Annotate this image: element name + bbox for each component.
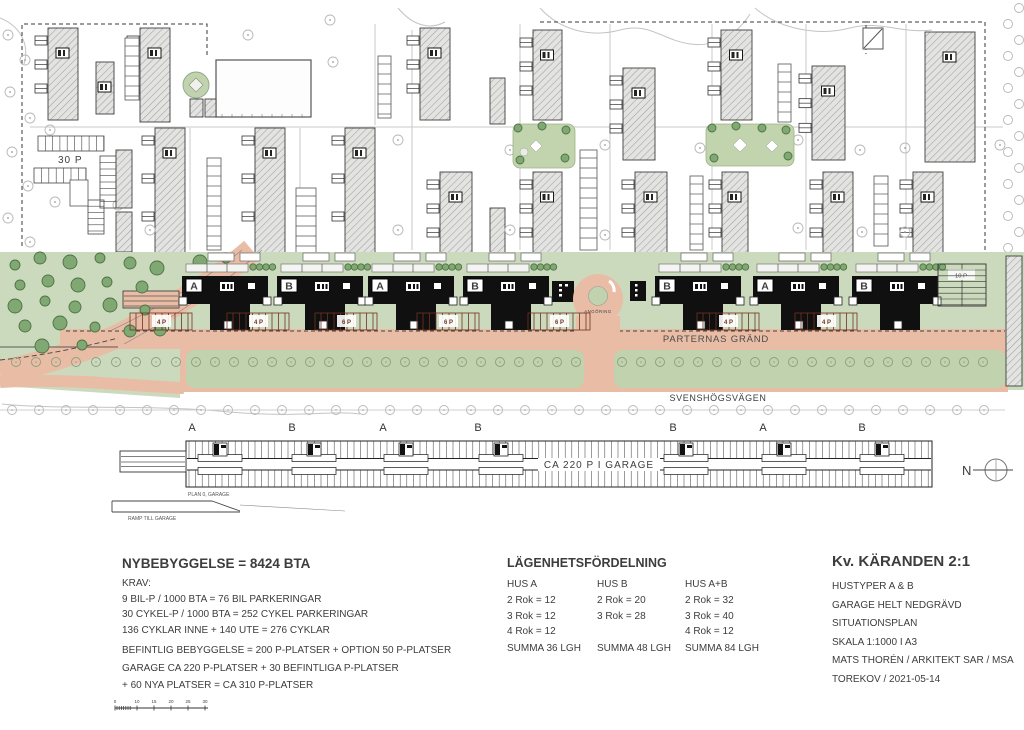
north-label: N <box>962 463 971 478</box>
tree-icon <box>77 340 87 350</box>
service-building <box>874 176 888 246</box>
existing-building <box>708 30 752 120</box>
garage-title: CA 220 P I GARAGE <box>544 460 654 471</box>
stats-line: GARAGE CA 220 P-PLATSER + 30 BEFINTLIGA … <box>122 663 451 674</box>
garage-section-letter-B: B <box>669 422 676 434</box>
tree-icon <box>71 278 85 292</box>
tree-icon <box>840 264 846 270</box>
tree-icon <box>537 264 543 270</box>
tree-icon <box>63 255 77 269</box>
existing-building <box>332 128 375 262</box>
tree-icon <box>1004 84 1013 93</box>
scale-tick-label: 20 <box>168 699 174 704</box>
service-building <box>778 64 791 122</box>
existing-building <box>709 172 748 262</box>
tree-icon <box>455 264 461 270</box>
tree-icon <box>1015 100 1024 109</box>
existing-building <box>520 30 562 120</box>
tree-icon <box>723 264 729 270</box>
parking-group-label: 6 P <box>342 320 351 326</box>
situationsplan-sheet: 30 P PARTERNAS GRÄND <box>0 0 1024 730</box>
scale-tick-label: 10 <box>134 699 140 704</box>
table-row: 3 Rok = 28 <box>597 611 685 622</box>
tree-icon <box>263 264 269 270</box>
tree-icon <box>1015 164 1024 173</box>
street-label-svenshogsvagen: SVENSHÖGSVÄGEN <box>670 393 767 403</box>
tree-icon <box>514 124 522 132</box>
table-row: 2 Rok = 20 <box>597 595 685 606</box>
building-label-A: A <box>190 281 198 293</box>
tree-icon <box>1015 68 1024 77</box>
ramp-section-drawing <box>112 501 345 512</box>
existing-building <box>925 32 975 162</box>
scale-bar: 01015202530 <box>114 699 208 711</box>
garage-section-letter-A: A <box>188 422 196 434</box>
tree-icon <box>15 280 25 290</box>
tree-icon <box>34 252 46 264</box>
tree-icon <box>1015 36 1024 45</box>
tree-icon <box>516 156 524 164</box>
tree-icon <box>1004 180 1013 189</box>
tree-icon <box>1004 20 1013 29</box>
column-total: SUMMA 36 LGH <box>507 643 597 654</box>
service-building <box>207 158 221 250</box>
existing-buildings <box>35 28 975 262</box>
table-row: 2 Rok = 12 <box>507 595 597 606</box>
scale-tick-label: 30 <box>202 699 208 704</box>
stats-title: NYBEBYGGELSE = 8424 BTA <box>122 556 451 571</box>
tree-icon <box>90 322 100 332</box>
title-line: TOREKOV / 2021-05-14 <box>832 674 1014 685</box>
tree-icon <box>1004 244 1013 253</box>
existing-building <box>490 78 505 124</box>
column-total: SUMMA 84 LGH <box>685 643 805 654</box>
service-building <box>296 188 316 258</box>
table-row-empty <box>597 626 685 637</box>
tree-icon <box>1015 196 1024 205</box>
tree-icon <box>939 264 945 270</box>
tree-icon <box>250 264 256 270</box>
existing-building <box>407 28 450 120</box>
scale-tick-label: 25 <box>185 699 191 704</box>
tree-icon <box>562 126 570 134</box>
tree-icon <box>124 257 136 269</box>
existing-building <box>810 172 853 262</box>
tree-icon <box>729 264 735 270</box>
parking-group-label: 6 P <box>444 320 453 326</box>
existing-building <box>427 172 472 262</box>
stats-line: + 60 NYA PLATSER = CA 310 P-PLATSER <box>122 680 451 691</box>
tree-icon <box>1004 212 1013 221</box>
garage-section-letter-B: B <box>288 422 295 434</box>
statistics-block: NYBEBYGGELSE = 8424 BTA KRAV: 9 BIL-P / … <box>122 556 451 698</box>
building-label-A: A <box>761 281 769 293</box>
building-label-B: B <box>860 281 868 293</box>
tree-icon <box>708 124 716 132</box>
garage-ramp-structure <box>123 291 179 308</box>
tree-icon <box>742 264 748 270</box>
garage-plan: ABABBAB CA 220 P I GARAGE PLAN 0, GARAGE… <box>112 422 932 522</box>
tree-icon <box>449 264 455 270</box>
north-compass: N <box>962 459 1013 481</box>
project-title: Kv. KÄRANDEN 2:1 <box>832 553 1014 570</box>
title-line: GARAGE HELT NEDGRÄVD <box>832 600 1014 611</box>
tree-icon <box>95 253 105 263</box>
table-row: 4 Rok = 12 <box>507 626 597 637</box>
apartments-column-hus-a: HUS A 2 Rok = 12 3 Rok = 12 4 Rok = 12 S… <box>507 579 597 654</box>
column-header: HUS A <box>507 579 597 590</box>
column-header: HUS B <box>597 579 685 590</box>
parking-group-label: 4 P <box>724 320 733 326</box>
scale-tick-label: 0 <box>114 699 117 704</box>
existing-building <box>610 68 655 160</box>
building-label-B: B <box>663 281 671 293</box>
title-line: HUSTYPER A & B <box>832 581 1014 592</box>
service-building <box>580 150 597 250</box>
building-label-A: A <box>376 281 384 293</box>
tree-icon <box>736 264 742 270</box>
service-building <box>690 176 703 250</box>
tree-icon <box>364 264 370 270</box>
title-line: SITUATIONSPLAN <box>832 618 1014 629</box>
street-label-parternas: PARTERNAS GRÄND <box>663 334 769 345</box>
tree-icon <box>1004 148 1013 157</box>
tree-icon <box>345 264 351 270</box>
garage-section-letter-A: A <box>379 422 387 434</box>
table-row: 3 Rok = 40 <box>685 611 805 622</box>
tree-icon <box>53 316 67 330</box>
garage-section-letter-A: A <box>759 422 767 434</box>
tree-icon <box>102 277 112 287</box>
garage-section-letter-B: B <box>858 422 865 434</box>
angoring-dropoff: ANGÖRING <box>573 274 623 332</box>
stats-line: 136 CYKLAR INNE + 140 UTE = 276 CYKLAR <box>122 625 451 636</box>
apartments-title: LÄGENHETSFÖRDELNING <box>507 556 805 570</box>
tree-icon <box>550 264 556 270</box>
tree-icon <box>758 124 766 132</box>
title-line: MATS THORÉN / ARKITEKT SAR / MSA <box>832 655 1014 666</box>
tree-icon <box>1004 52 1013 61</box>
garage-plan-label: PLAN 0, GARAGE <box>188 492 230 498</box>
tree-icon <box>1004 116 1013 125</box>
stats-line: BEFINTLIG BEBYGGELSE = 200 P-PLATSER + O… <box>122 645 451 656</box>
tree-icon <box>926 264 932 270</box>
tree-icon <box>19 320 31 332</box>
existing-building <box>96 62 114 114</box>
stats-line: 30 CYKEL-P / 1000 BTA = 252 CYKEL PARKER… <box>122 609 451 620</box>
tree-icon <box>538 122 546 130</box>
table-row: 3 Rok = 12 <box>507 611 597 622</box>
column-header: HUS A+B <box>685 579 805 590</box>
table-row: 2 Rok = 32 <box>685 595 805 606</box>
column-total: SUMMA 48 LGH <box>597 643 685 654</box>
tree-icon <box>1015 132 1024 141</box>
stats-line: 9 BIL-P / 1000 BTA = 76 BIL PARKERINGAR <box>122 594 451 605</box>
tree-icon <box>436 264 442 270</box>
tree-icon <box>1015 228 1024 237</box>
scale-tick-label: 15 <box>151 699 157 704</box>
tree-icon <box>358 264 364 270</box>
title-block: Kv. KÄRANDEN 2:1 HUSTYPER A & B GARAGE H… <box>832 553 1014 692</box>
tree-icon <box>351 264 357 270</box>
tree-icon <box>544 264 550 270</box>
apartment-distribution-table: LÄGENHETSFÖRDELNING HUS A 2 Rok = 12 3 R… <box>507 556 805 654</box>
tree-icon <box>732 122 740 130</box>
garage-entry-ramp <box>120 451 186 472</box>
tree-icon <box>821 264 827 270</box>
building-label-B: B <box>471 281 479 293</box>
tree-icon <box>782 126 790 134</box>
tree-icon <box>827 264 833 270</box>
tree-icon <box>69 301 81 313</box>
stats-line: KRAV: <box>122 578 451 589</box>
existing-building <box>490 208 505 254</box>
tree-icon <box>35 339 49 353</box>
garage-section-letter-B: B <box>474 422 481 434</box>
table-row: 4 Rok = 12 <box>685 626 805 637</box>
tree-icon <box>834 264 840 270</box>
tree-icon <box>710 154 718 162</box>
existing-building <box>242 128 285 262</box>
garage-ramp-label: RAMP TILL GARAGE <box>128 516 177 522</box>
parking-10p-label: 10 P <box>955 274 967 280</box>
parking-stalls <box>88 200 104 234</box>
tree-icon <box>256 264 262 270</box>
tree-icon <box>42 275 54 287</box>
garage-section-letters: ABABBAB <box>188 422 865 434</box>
parking-lot-30p: 30 P <box>34 136 132 252</box>
tree-icon <box>531 264 537 270</box>
tree-icon <box>10 260 20 270</box>
tree-icon <box>150 261 164 275</box>
tree-icon <box>269 264 275 270</box>
parking-group-label: 6 P <box>555 320 564 326</box>
tree-icon <box>1015 4 1024 13</box>
building-label-B: B <box>285 281 293 293</box>
apartments-column-hus-ab: HUS A+B 2 Rok = 32 3 Rok = 40 4 Rok = 12… <box>685 579 805 654</box>
parking-group-label: 4 P <box>822 320 831 326</box>
parking-30p-label: 30 P <box>58 155 83 166</box>
tree-icon <box>8 299 22 313</box>
tree-icon <box>140 305 150 315</box>
apartments-column-hus-b: HUS B 2 Rok = 20 3 Rok = 28 SUMMA 48 LGH <box>597 579 685 654</box>
parking-group-label: 4 P <box>254 320 263 326</box>
tree-icon <box>40 296 50 306</box>
existing-building <box>142 128 185 262</box>
parking-stalls <box>38 136 104 151</box>
tree-icon <box>784 152 792 160</box>
central-public-building <box>183 60 311 118</box>
existing-building <box>520 172 562 262</box>
existing-building <box>622 172 667 262</box>
tree-icon <box>442 264 448 270</box>
service-building <box>125 38 139 100</box>
service-building <box>378 56 391 118</box>
tree-icon <box>103 298 117 312</box>
title-line: SKALA 1:1000 I A3 <box>832 637 1014 648</box>
tree-icon <box>136 281 148 293</box>
parking-group-label: 4 P <box>157 320 166 326</box>
existing-building <box>35 28 78 120</box>
tree-icon <box>561 154 569 162</box>
transformer-plot <box>863 28 883 49</box>
tree-icon <box>920 264 926 270</box>
